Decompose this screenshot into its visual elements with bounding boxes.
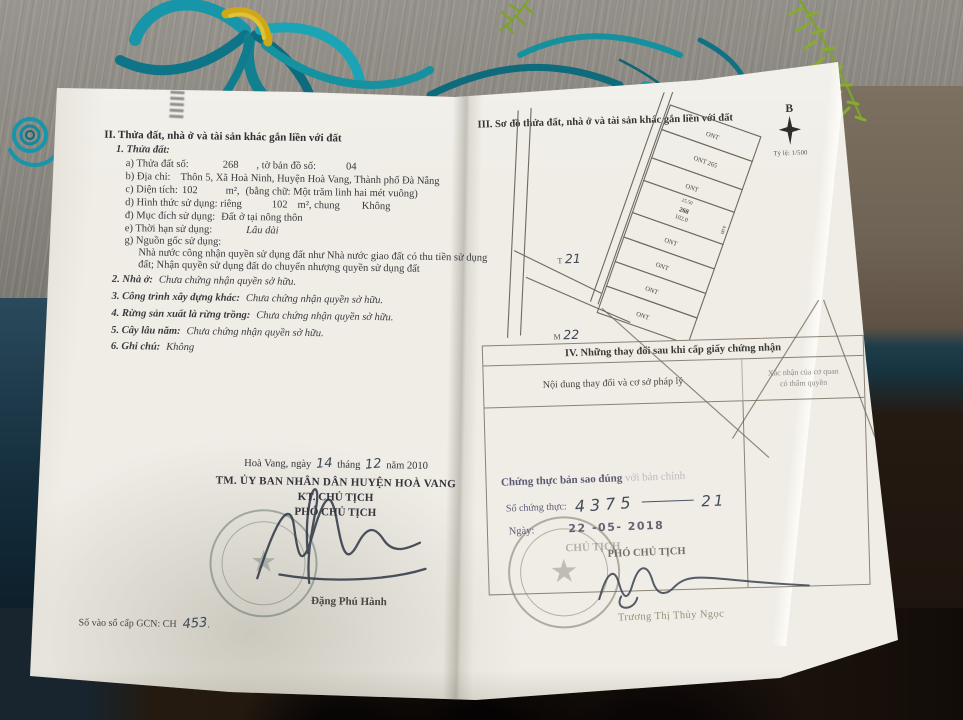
- field-label: , tờ bản đồ số:: [256, 160, 316, 172]
- field-value: 268: [223, 160, 239, 171]
- field-label: e) Thời hạn sử dụng:: [125, 223, 213, 235]
- certify-number-line: Số chứng thực:437521: [506, 490, 727, 517]
- field-value: Đất ở tại nông thôn: [221, 212, 303, 224]
- field-unit: m²,: [226, 186, 240, 197]
- certify-number-label: Số chứng thực:: [506, 501, 567, 514]
- item-label: 5. Cây lâu năm:: [111, 325, 181, 337]
- handwritten-day: 14: [316, 456, 333, 472]
- parcel-dimension: 25.50: [681, 198, 694, 207]
- item-label: 2. Nhà ở:: [112, 274, 153, 286]
- item-other-construction: 3. Công trình xây dựng khác:Chưa chứng n…: [112, 291, 383, 306]
- handwritten-register-number: 21: [701, 491, 727, 510]
- field-value: 102: [272, 199, 288, 210]
- section2-title: II. Thửa đất, nhà ở và tài sản khác gắn …: [104, 129, 342, 145]
- parcel-label: ONT: [655, 261, 670, 272]
- field-value: Không: [362, 201, 391, 212]
- handwritten-book-number: 453: [182, 615, 208, 632]
- item-house: 2. Nhà ở:Chưa chứng nhận quyền sở hữu.: [112, 274, 296, 288]
- certify-date-label: Ngày:: [509, 526, 535, 538]
- field-label: d) Hình thức sử dụng: riêng: [125, 197, 242, 210]
- date-stamp: 22 -05- 2018: [568, 519, 664, 536]
- mark-prefix: T: [557, 256, 562, 265]
- item-perennial-trees: 5. Cây lâu năm:Chưa chứng nhận quyền sở …: [111, 325, 324, 339]
- handwritten-month: 12: [364, 456, 382, 472]
- field-value: Lâu dài: [246, 225, 279, 237]
- date-mid: tháng: [337, 459, 360, 470]
- field-label: a) Thửa đất số:: [126, 158, 189, 170]
- signature-scribble: [249, 482, 441, 600]
- date-prefix: Hoà Vang, ngày: [244, 458, 311, 470]
- pen-dash-line: [641, 500, 693, 503]
- item-value: Chưa chứng nhận quyền sở hữu.: [256, 310, 393, 323]
- mark-prefix: M: [553, 332, 560, 341]
- item-value: Không: [166, 342, 194, 353]
- field-use-purpose: đ) Mục đích sử dụng:Đất ở tại nông thôn: [125, 210, 303, 224]
- item-label: 4. Rừng sản xuất là rừng trồng:: [111, 308, 250, 321]
- parcel-label: ONT: [684, 183, 699, 194]
- parcel-label: ONT: [644, 285, 659, 296]
- field-value: 102: [182, 185, 198, 196]
- mark-number: 22: [563, 327, 579, 342]
- certify-date-line: Ngày:22 -05- 2018: [508, 519, 664, 538]
- item-value: Chưa chứng nhận quyền sở hữu.: [246, 293, 383, 306]
- field-value: 04: [346, 162, 357, 173]
- certification-block: Chứng thực bản sao đúng với bản chính Số…: [501, 463, 877, 636]
- item-label: 3. Công trình xây dựng khác:: [112, 291, 240, 304]
- field-parcel-number: a) Thửa đất số:268, tờ bản đồ số:04: [126, 158, 357, 173]
- field-origin-label: g) Nguồn gốc sử dụng:: [124, 235, 221, 248]
- certificate-paper-spread: II. Thửa đất, nhà ở và tài sản khác gắn …: [0, 0, 963, 720]
- mark-number: 21: [565, 251, 581, 266]
- item-planted-forest: 4. Rừng sản xuất là rừng trồng:Chưa chứn…: [111, 308, 393, 323]
- field-label: b) Địa chỉ:: [125, 171, 170, 183]
- parcel-heading: 1. Thửa đất:: [116, 144, 170, 156]
- field-label: đ) Mục đích sử dụng:: [125, 210, 215, 222]
- parcel-label: ONT: [663, 237, 678, 248]
- field-unit: m², chung: [297, 200, 339, 212]
- left-page-section-2: II. Thửa đất, nhà ở và tài sản khác gắn …: [48, 86, 459, 692]
- date-suffix: năm 2010: [386, 460, 428, 472]
- certificate-book-number: Số vào sổ cấp GCN: CH453.: [78, 614, 210, 631]
- item-value: Chưa chứng nhận quyền sở hữu.: [187, 326, 324, 339]
- parcel-dimension: 4.00: [718, 224, 726, 234]
- item-notes: 6. Ghi chú:Không: [111, 341, 194, 353]
- parcel-label: ONT 265: [692, 155, 718, 170]
- field-words: (bằng chữ: Một trăm linh hai mét vuông): [245, 186, 417, 200]
- item-value: Chưa chứng nhận quyền sở hữu.: [159, 275, 296, 288]
- field-label: c) Diện tích:: [125, 184, 178, 196]
- book-number-label: Số vào sổ cấp GCN: CH: [78, 617, 176, 630]
- map-boundary-strike-lines: [587, 292, 884, 478]
- handwritten-mark-21: T 21: [557, 251, 581, 267]
- item-label: 6. Ghi chú:: [111, 341, 160, 353]
- handwritten-mark-22: M 22: [553, 327, 579, 343]
- photo-of-land-certificate: II. Thửa đất, nhà ở và tài sản khác gắn …: [0, 0, 963, 720]
- certify-statement-faint: với bản chính: [625, 470, 686, 484]
- parcel-label: ONT: [705, 131, 720, 142]
- handwritten-certify-number: 4375: [574, 493, 636, 516]
- right-page-sections-3-4: III. Sơ đồ thửa đất, nhà ở và tài sản kh…: [462, 56, 904, 708]
